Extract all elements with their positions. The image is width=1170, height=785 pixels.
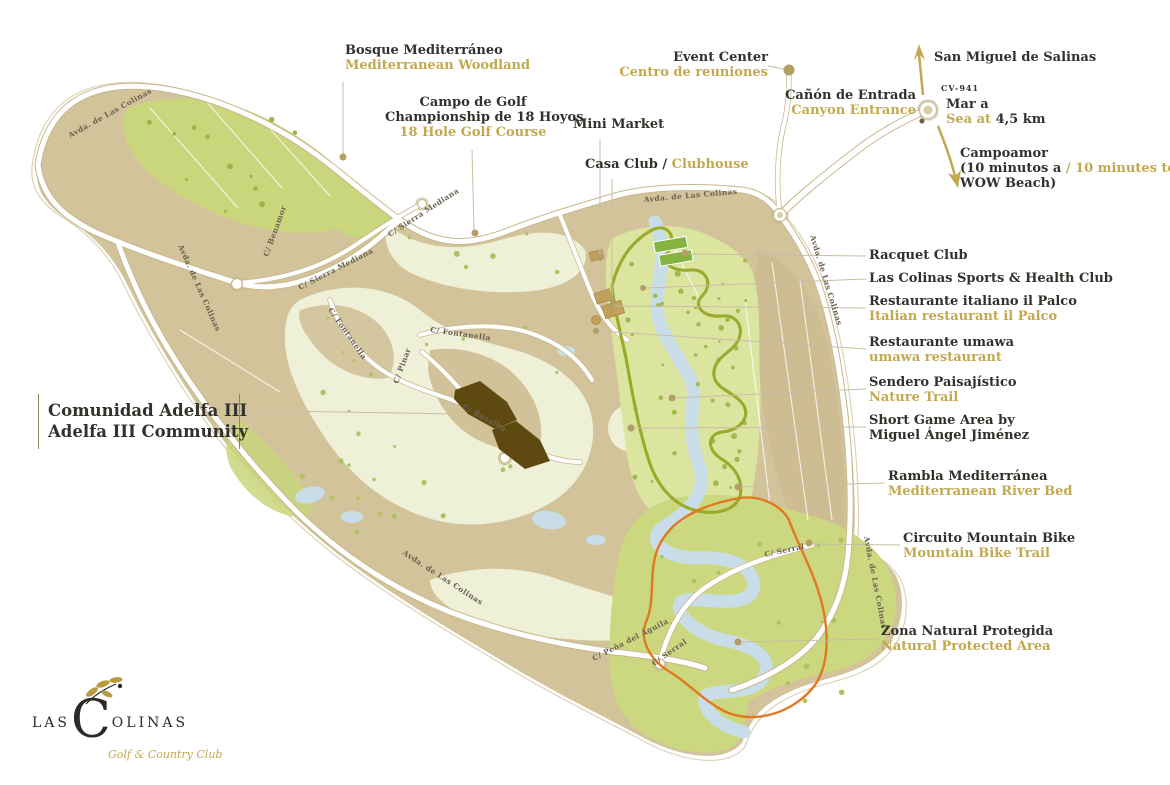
label-en: Mediterranean Woodland xyxy=(345,59,530,74)
label-restaurante-il-palco: Restaurante italiano il Palco Italian re… xyxy=(869,295,1077,325)
label-en: Clubhouse xyxy=(672,157,749,172)
label-sendero-paisajistico: Sendero Paisajístico Nature Trail xyxy=(869,376,1017,406)
logo-c: C xyxy=(71,690,111,750)
label-en: Mediterranean River Bed xyxy=(888,485,1073,500)
logo-las: LAS xyxy=(32,715,70,731)
arrow-campoamor-icon xyxy=(938,126,955,176)
label-circuito-mtb: Circuito Mountain Bike Mountain Bike Tra… xyxy=(903,532,1075,562)
label-distance: 4,5 km xyxy=(996,112,1046,127)
label-campo-de-golf: Campo de Golf Championship de 18 Hoyos 1… xyxy=(385,96,561,140)
label-restaurante-umawa: Restaurante umawa umawa restaurant xyxy=(869,336,1014,366)
label-es: Zona Natural Protegida xyxy=(881,625,1053,640)
label-mini-market: Mini Market xyxy=(573,118,664,133)
label-en: Nature Trail xyxy=(869,391,1017,406)
label-en: Mountain Bike Trail xyxy=(903,547,1075,562)
label-es: Circuito Mountain Bike xyxy=(903,532,1075,547)
label-en: Natural Protected Area xyxy=(881,640,1053,655)
label-es: Mar a xyxy=(946,98,1045,113)
label-event-center: Event Center Centro de reuniones xyxy=(618,51,768,81)
label-es: Restaurante italiano il Palco xyxy=(869,295,1077,310)
label-sports-health-club: Las Colinas Sports & Health Club xyxy=(869,272,1113,287)
label-es: Casa Club / xyxy=(585,157,672,172)
label-l2: Miguel Ángel Jiménez xyxy=(869,429,1029,444)
label-en: Centro de reuniones xyxy=(618,66,768,81)
label-es: Rambla Mediterránea xyxy=(888,470,1073,485)
label-mar-a: Mar a Sea at 4,5 km xyxy=(946,98,1045,128)
label-comunidad-adelfa: Comunidad Adelfa III Adelfa III Communit… xyxy=(38,394,240,449)
label-l2a: (10 minutos a xyxy=(960,161,1066,176)
label-es: Event Center xyxy=(618,51,768,66)
label-l1: Campo de Golf xyxy=(385,96,561,111)
label-en: Canyon Entrance xyxy=(776,104,916,119)
las-colinas-map-page: Avda. de Las Colinas Avda. de Las Colina… xyxy=(0,0,1170,785)
label-l2: Championship de 18 Hoyos xyxy=(385,111,561,126)
label-l2b: / 10 minutes to xyxy=(1066,161,1170,176)
label-rambla-mediterranea: Rambla Mediterránea Mediterranean River … xyxy=(888,470,1073,500)
label-es: Cañón de Entrada xyxy=(776,89,916,104)
label-l3: WOW Beach) xyxy=(960,177,1170,192)
label-es: Comunidad Adelfa III xyxy=(48,401,230,422)
label-campoamor: Campoamor (10 minutos a / 10 minutes to … xyxy=(960,147,1170,191)
label-racquet-club: Racquet Club xyxy=(869,249,968,264)
label-canon-entrada: Cañón de Entrada Canyon Entrance xyxy=(776,89,916,119)
logo-olinas: OLINAS xyxy=(112,715,188,731)
label-es: Bosque Mediterráneo xyxy=(345,44,530,59)
label-es: Restaurante umawa xyxy=(869,336,1014,351)
label-en: Italian restaurant il Palco xyxy=(869,310,1077,325)
event-center-dot xyxy=(784,65,795,76)
label-l1: Short Game Area by xyxy=(869,414,1029,429)
label-es: Sendero Paisajístico xyxy=(869,376,1017,391)
label-casa-club: Casa Club / Clubhouse xyxy=(585,158,749,173)
label-en: Sea at xyxy=(946,112,996,127)
las-colinas-logo: LASCOLINAS Golf & Country Club xyxy=(32,676,232,766)
roundabout-center xyxy=(924,106,933,115)
label-en: 18 Hole Golf Course xyxy=(385,126,561,141)
label-san-miguel: San Miguel de Salinas xyxy=(934,51,1096,66)
arrow-san-miguel-icon xyxy=(919,54,923,95)
logo-subtitle: Golf & Country Club xyxy=(108,748,222,761)
label-en: umawa restaurant xyxy=(869,351,1014,366)
label-cv941: CV-941 xyxy=(941,84,979,93)
label-short-game-area: Short Game Area by Miguel Ángel Jiménez xyxy=(869,414,1029,444)
junction-center xyxy=(777,212,783,218)
leader-campo xyxy=(472,150,474,230)
label-zona-natural: Zona Natural Protegida Natural Protected… xyxy=(881,625,1053,655)
label-bosque-mediterraneo: Bosque Mediterráneo Mediterranean Woodla… xyxy=(345,44,530,74)
leader-event-center xyxy=(768,66,784,69)
label-en: Adelfa III Community xyxy=(48,422,230,443)
label-l1: Campoamor xyxy=(960,147,1170,162)
